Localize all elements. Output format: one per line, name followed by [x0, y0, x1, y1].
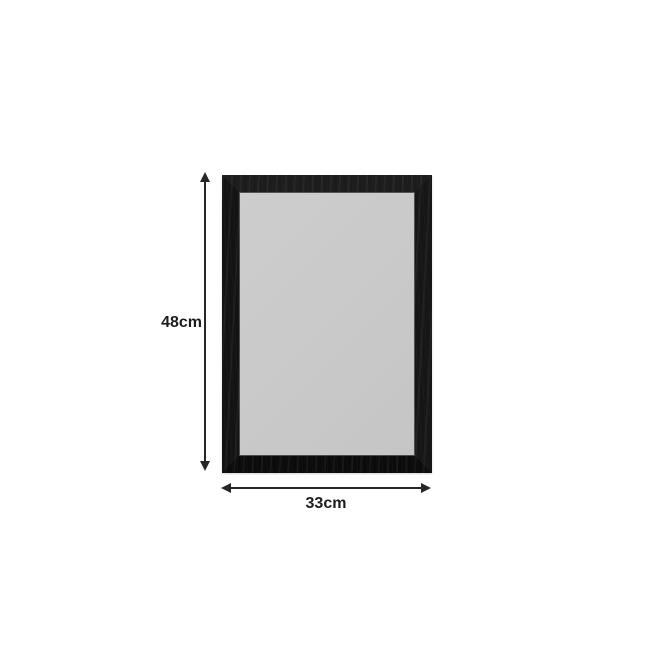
mirror-frame — [222, 175, 432, 473]
frame-glass — [240, 193, 414, 455]
width-dimension-line — [230, 487, 422, 489]
product-diagram: 48cm 33cm — [0, 0, 650, 650]
height-dimension-line — [204, 181, 206, 462]
height-dimension-label: 48cm — [118, 314, 202, 332]
arrowhead-down-icon — [200, 461, 210, 471]
width-dimension-label: 33cm — [276, 495, 376, 513]
arrowhead-right-icon — [421, 483, 431, 493]
arrowhead-left-icon — [221, 483, 231, 493]
arrowhead-up-icon — [200, 172, 210, 182]
